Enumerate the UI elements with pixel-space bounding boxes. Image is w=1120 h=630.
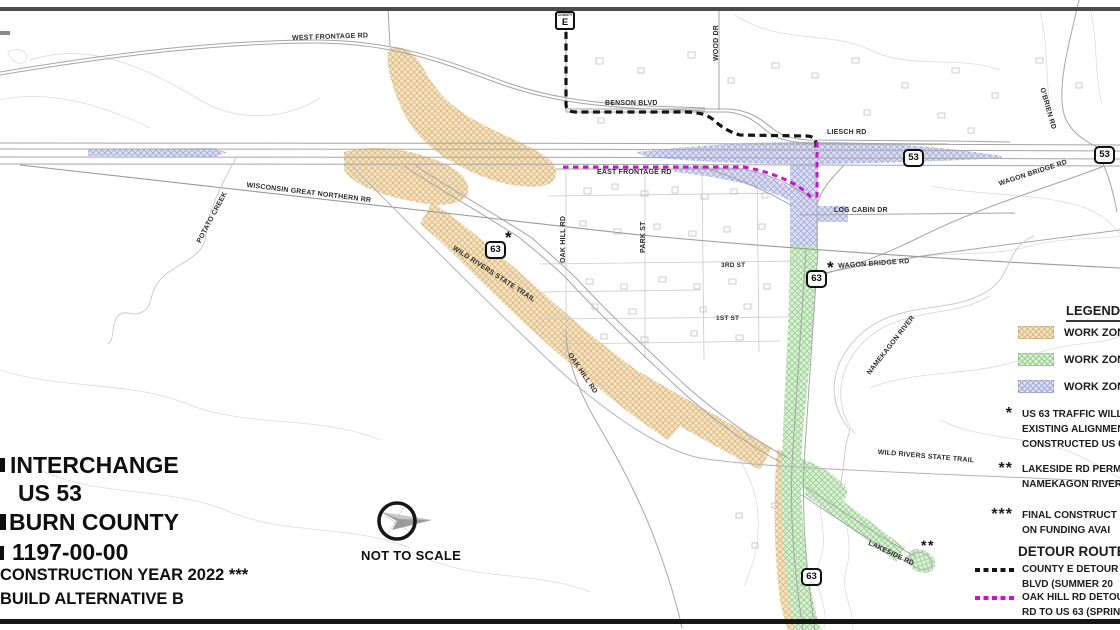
map-label-log-cabin-dr: LOG CABIN DR — [834, 207, 888, 214]
asterisk-marker: ** — [921, 538, 935, 552]
asterisk-triple: *** — [975, 508, 1013, 538]
magenta-dash-sample — [975, 596, 1016, 600]
note-us63-traffic: * US 63 TRAFFIC WILL EXISTING ALIGNMEN C… — [975, 407, 1120, 452]
legend-item-work-zone-green: WORK ZON — [1018, 353, 1120, 366]
green-hatch-swatch — [1018, 353, 1054, 366]
orange-hatch-swatch — [1018, 326, 1054, 339]
asterisk-marker: * — [505, 229, 513, 246]
map-label-oak-hill-rd: OAK HILL RD — [560, 216, 567, 263]
title-line-2: US 53 — [18, 482, 82, 505]
title-line-6: BUILD ALTERNATIVE B — [0, 591, 184, 608]
bottom-border — [0, 619, 1120, 624]
map-label-benson-blvd: BENSON BLVD — [605, 100, 658, 107]
asterisk-double: ** — [975, 462, 1013, 492]
title-line-3: BURN COUNTY — [9, 511, 179, 534]
top-border — [0, 7, 1120, 11]
legend-item-work-zone-purple: WORK ZON — [1018, 380, 1120, 393]
map-label-east-frontage-rd: EAST FRONTAGE RD — [597, 169, 672, 176]
detour-item-oak-hill: OAK HILL RD DETOU RD TO US 63 (SPRIN — [975, 591, 1120, 620]
legend-title: LEGEND — [1066, 303, 1120, 322]
map-label-wood-dr: WOOD DR — [713, 25, 720, 61]
detour-routes-title: DETOUR ROUTES — [1018, 544, 1120, 559]
note-final-construction: *** FINAL CONSTRUCT ON FUNDING AVAI — [975, 508, 1117, 538]
black-dash-sample — [975, 568, 1016, 572]
map-label-1st-st: 1ST ST — [716, 316, 739, 323]
map-canvas — [0, 0, 1120, 630]
detour-item-county-e: COUNTY E DETOUR BLVD (SUMMER 20 — [975, 563, 1118, 592]
purple-hatch-swatch — [1018, 380, 1054, 393]
not-to-scale-label: NOT TO SCALE — [361, 548, 461, 563]
map-label-park-st: PARK ST — [640, 221, 647, 253]
work-zone-orange — [344, 47, 800, 630]
map-label-3rd-st: 3RD ST — [721, 263, 745, 270]
asterisk-marker: * — [827, 259, 835, 276]
us-route-shield-63: 63 — [806, 270, 827, 288]
note-lakeside-rd: ** LAKESIDE RD PERM NAMEKAGON RIVER — [975, 462, 1120, 492]
construction-map-sheet: LEGEND WORK ZON WORK ZON WORK ZON * US 6… — [0, 0, 1120, 630]
us-route-shield-63: 63 — [485, 241, 506, 259]
map-label-liesch-rd: LIESCH RD — [827, 129, 867, 136]
us-route-shield-63: 63 — [801, 568, 822, 586]
us-route-shield-53: 53 — [1094, 146, 1115, 164]
edge-glyph-fragments — [0, 31, 10, 560]
us-route-shield-53: 53 — [903, 149, 924, 167]
title-line-1: INTERCHANGE — [10, 454, 179, 477]
county-marker-letter: E — [557, 18, 573, 27]
title-line-5: CONSTRUCTION YEAR 2022 *** — [0, 567, 248, 584]
county-route-marker-E: COUNTYE — [555, 11, 575, 30]
legend-item-work-zone-orange: WORK ZON — [1018, 326, 1120, 339]
asterisk-single: * — [975, 407, 1013, 452]
north-arrow — [379, 503, 432, 539]
title-line-4: 1197-00-00 — [12, 541, 128, 564]
